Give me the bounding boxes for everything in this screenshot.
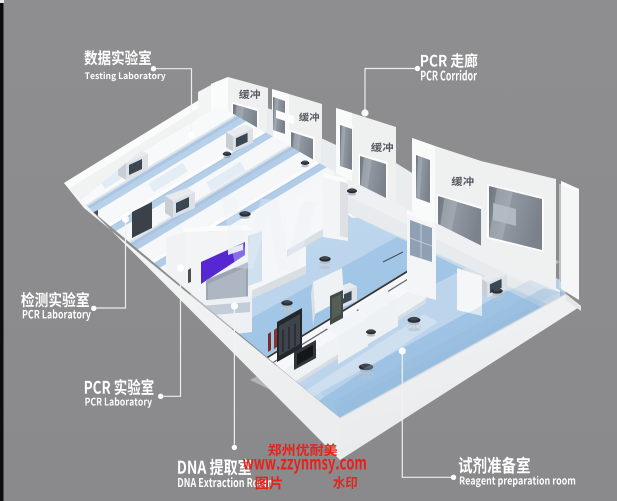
svg-text:W: W <box>216 175 319 294</box>
